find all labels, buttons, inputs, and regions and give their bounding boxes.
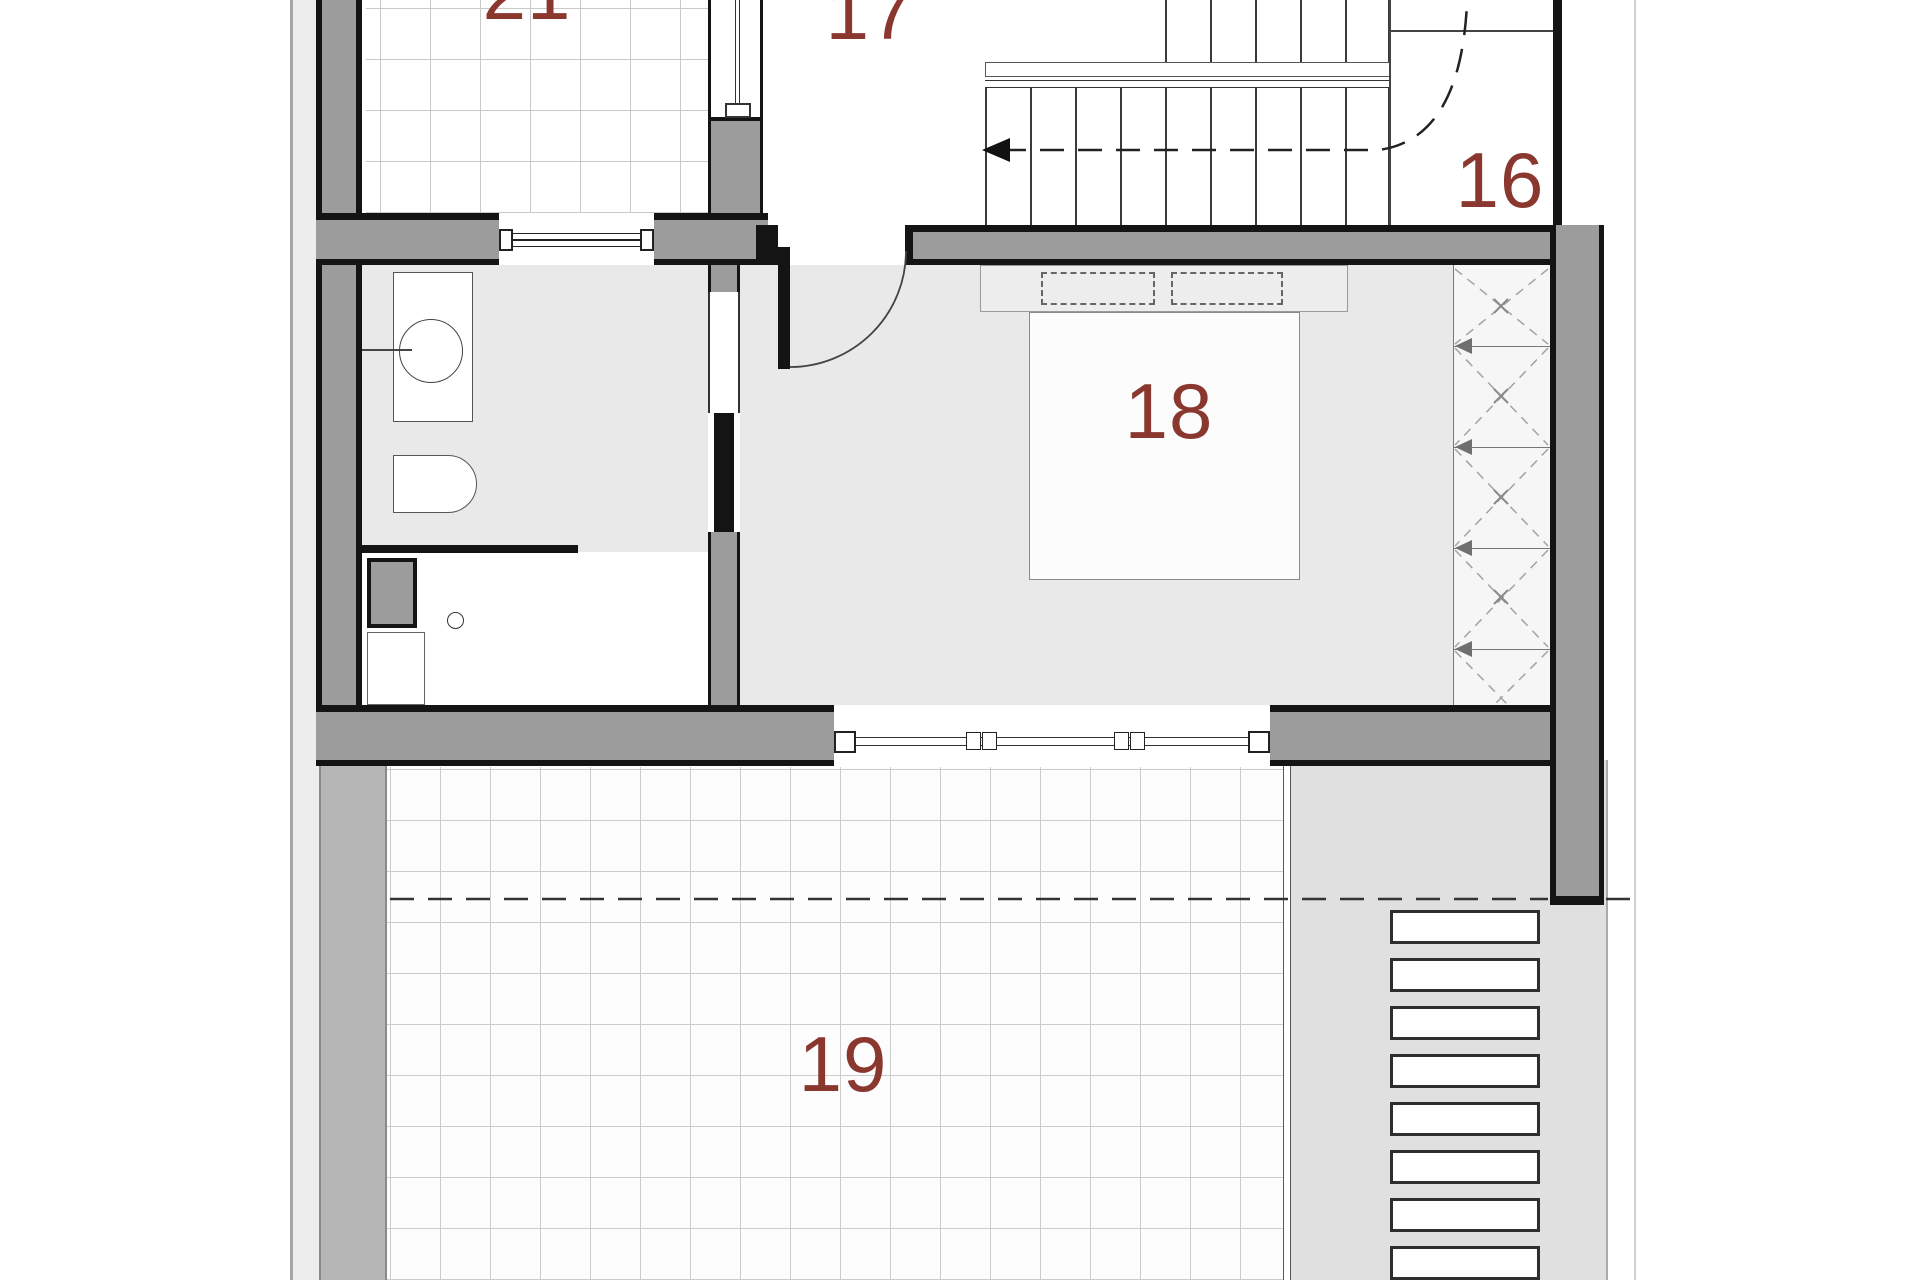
louver-slat [1390, 910, 1540, 944]
window-end-cap [499, 229, 513, 251]
wardrobe-door-arrow-icon [1455, 439, 1472, 455]
window-slider-handle [966, 732, 981, 750]
window-end-cap [640, 229, 654, 251]
bottom-wall-left [316, 705, 834, 766]
sliding-window [834, 706, 1270, 765]
window-rail [854, 737, 1250, 746]
glass-pane-line [735, 0, 740, 105]
toilet-icon [393, 455, 477, 513]
room-label-19: 19 [773, 1025, 913, 1103]
shower-drain-icon [447, 612, 464, 629]
window-frame-midline [505, 239, 648, 241]
bed-headboard [980, 265, 1348, 312]
stairs-lower-flight-treads [985, 88, 1390, 225]
window-end-cap [1248, 731, 1270, 753]
room-label-16: 16 [1430, 141, 1570, 219]
bed-pillow-left [1041, 272, 1155, 305]
bedroom-door-jamb [756, 225, 778, 265]
window-end-cap [834, 731, 856, 753]
room-label-17: 17 [800, 0, 940, 51]
louver-slat [1390, 1150, 1540, 1184]
louver-slat [1390, 1246, 1540, 1280]
louver-slat [1390, 1006, 1540, 1040]
glass-partition [708, 0, 763, 117]
wardrobe-cell [1453, 548, 1550, 649]
terrace-grid-edge-double-line [1283, 764, 1291, 1280]
stairs-right-edge-line [1389, 0, 1391, 225]
glass-end-cap [725, 103, 751, 118]
pocket-wall-stub [708, 265, 740, 292]
room-label-18: 18 [1099, 372, 1239, 450]
stairs-upper-flight-treads [1165, 0, 1390, 62]
window-slider-handle [1114, 732, 1129, 750]
bathroom-divider-wall [362, 545, 578, 553]
wardrobe-door-arrow-icon [1455, 641, 1472, 657]
louver-slat [1390, 1102, 1540, 1136]
shower-tray [367, 632, 425, 705]
right-exterior-wall [1550, 225, 1604, 905]
washbasin-icon [399, 319, 463, 383]
faucet-line [356, 349, 412, 351]
wardrobe-door-arrow-icon [1455, 540, 1472, 556]
stairwell-opening-line [1390, 30, 1553, 32]
pocket-wall-lower [708, 532, 740, 705]
pocket-door-track [708, 292, 740, 413]
window-slider-handle [982, 732, 997, 750]
left-exterior-wall [316, 0, 362, 712]
bathroom-window [499, 213, 654, 265]
floor-plan-page: 21 17 16 18 19 [0, 0, 1920, 1280]
landing-partition-wall [708, 117, 763, 213]
stairs-landing-edge [985, 62, 1390, 77]
pocket-door-leaf [714, 413, 734, 532]
louver-slat [1390, 1054, 1540, 1088]
terrace-left-wall [319, 766, 387, 1280]
terrace-side-strip-edge [1606, 760, 1608, 1280]
wardrobe-cell [1453, 346, 1550, 447]
bedroom-top-wall [905, 225, 1556, 265]
bedroom-door-leaf [778, 247, 790, 369]
page-right-border-line [1634, 0, 1636, 1280]
wardrobe-door-arrow-icon [1455, 338, 1472, 354]
window-slider-handle [1130, 732, 1145, 750]
louver-slat [1390, 1198, 1540, 1232]
duct-shaft [367, 558, 417, 628]
bed-pillow-right [1171, 272, 1283, 305]
wardrobe-cell [1453, 447, 1550, 548]
wardrobe-cell [1453, 649, 1550, 705]
stairs-nosing-lines [985, 80, 1390, 88]
louver-slat [1390, 958, 1540, 992]
wardrobe-cell [1453, 265, 1550, 346]
room-label-21: 21 [457, 0, 597, 31]
